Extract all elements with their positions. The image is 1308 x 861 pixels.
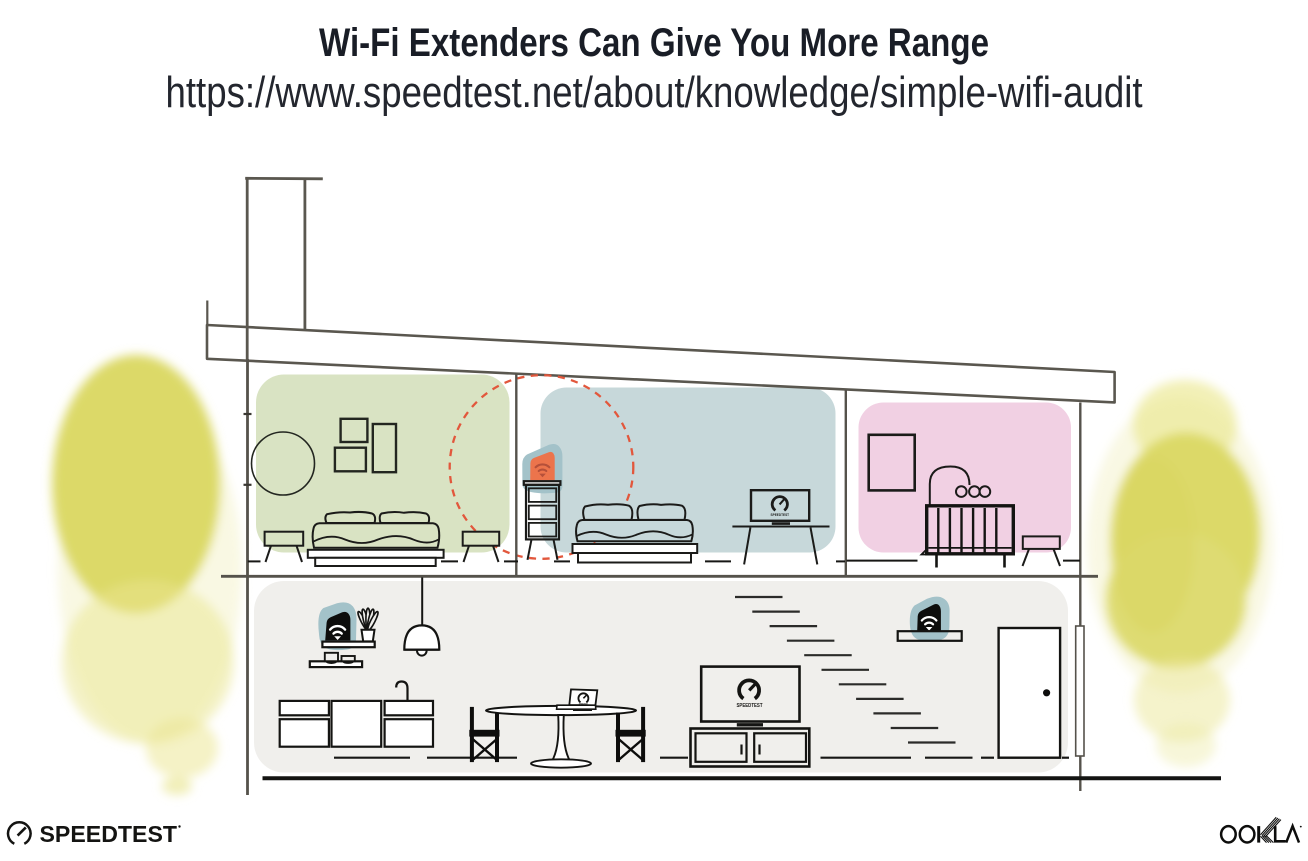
svg-text:SPEEDTEST: SPEEDTEST [737,703,764,709]
svg-text:Wi-Fi Extenders Can Give You M: Wi-Fi Extenders Can Give You More Range [319,21,989,65]
svg-text:SPEEDTEST: SPEEDTEST [771,513,790,517]
svg-text:https://www.speedtest.net/abou: https://www.speedtest.net/about/knowledg… [166,68,1143,117]
svg-text:SPEEDTEST: SPEEDTEST [40,821,178,847]
